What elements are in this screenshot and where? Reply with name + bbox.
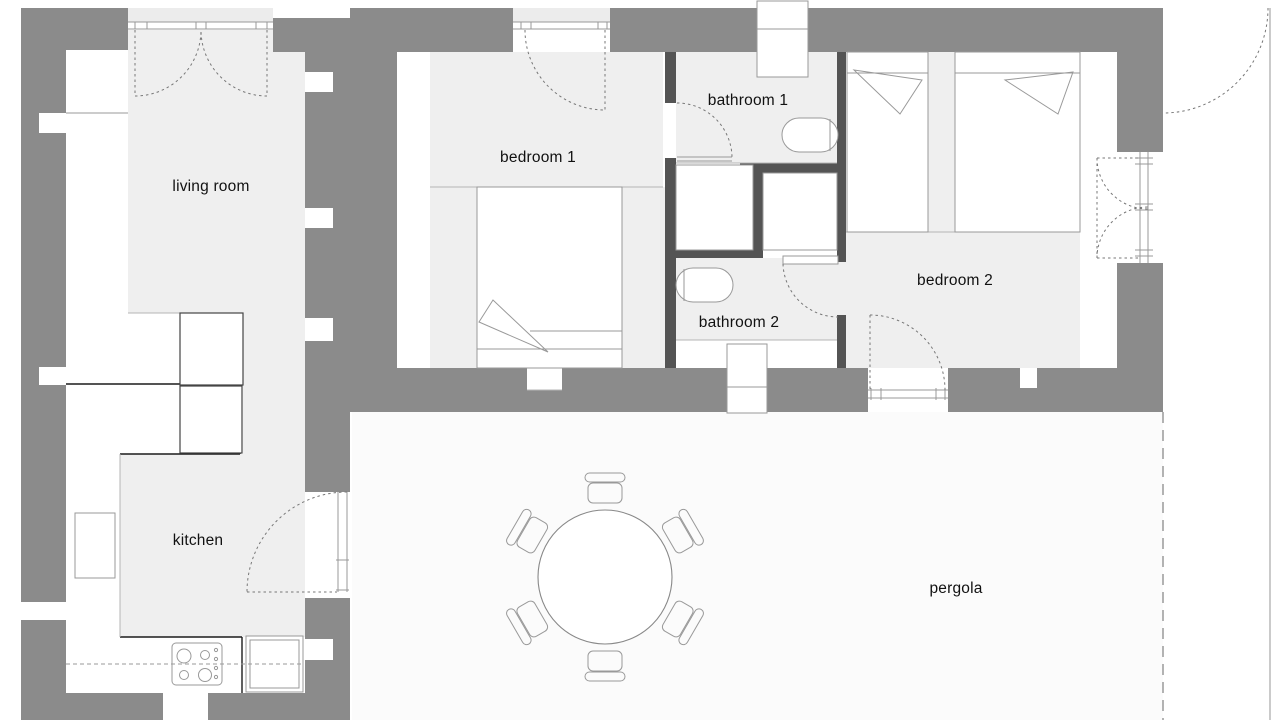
living-cabinet-1 — [180, 313, 243, 385]
bathroom2-toilet — [676, 268, 733, 302]
bedroom1-side-band-right — [620, 187, 665, 368]
window-west-1 — [39, 113, 66, 133]
fridge — [246, 636, 303, 692]
room-label-bedroom2: bedroom 2 — [917, 272, 993, 290]
spine-left-upper — [665, 52, 676, 103]
bedroom1-side-band-left — [430, 187, 477, 368]
spine-right-lower — [837, 315, 846, 368]
window-south-bedroom1 — [527, 368, 562, 390]
shower-divider-wall — [753, 163, 763, 258]
window-east-leftwing-4 — [305, 639, 333, 660]
bedroom2-bed-right — [955, 52, 1080, 232]
kitchen-door-opening — [305, 492, 350, 598]
room-label-kitchen: kitchen — [173, 532, 224, 550]
shower-a-bottom-wall — [665, 250, 763, 258]
room-label-living: living room — [172, 178, 249, 196]
bedroom1-door-frame — [513, 22, 610, 29]
kitchen-counter-left — [75, 513, 115, 578]
room-label-bathroom2: bathroom 2 — [699, 314, 779, 332]
living-cabinet-2 — [180, 386, 242, 453]
bathroom1-toilet — [782, 118, 838, 152]
dining-table — [538, 510, 672, 644]
window-west-3 — [13, 602, 66, 620]
wall-east-upper — [1117, 52, 1163, 152]
wall-east-lower — [1117, 263, 1163, 368]
window-south-small — [1020, 368, 1037, 388]
floor-plan: living room kitchen bedroom 1 bathroom 1… — [0, 0, 1280, 720]
shower-2 — [763, 173, 837, 250]
bathroom2-door-leaf — [783, 256, 838, 264]
window-east-leftwing-2 — [305, 208, 333, 228]
bedroom2-floor — [846, 232, 1080, 368]
floor-plan-svg — [0, 0, 1280, 720]
washbasin — [727, 344, 767, 413]
bathroom2-door-gap — [837, 262, 846, 315]
wall-north-3 — [350, 8, 513, 52]
spine-right-upper — [837, 52, 846, 262]
room-label-bedroom1: bedroom 1 — [500, 149, 576, 167]
room-label-pergola: pergola — [929, 580, 982, 598]
bedroom2-nightstand-band — [928, 52, 955, 232]
window-east-leftwing-1 — [305, 72, 333, 92]
wall-west-bedroomwing — [350, 52, 397, 368]
window-east-leftwing-3 — [305, 318, 333, 341]
entry-door-frame — [128, 22, 273, 29]
wall-east-leftwing-upper — [305, 52, 350, 492]
wall-north-2 — [273, 18, 350, 52]
wall-north-1 — [21, 8, 128, 50]
bedroom1-bed — [477, 187, 622, 368]
wall-north-5 — [808, 8, 1163, 52]
french-window-frame — [1135, 152, 1153, 263]
window-south-kitchen — [163, 693, 208, 720]
bedroom2-bed-left — [847, 52, 928, 232]
gate-swing — [1163, 8, 1268, 113]
pergola-floor — [352, 412, 1163, 720]
spine-left-lower — [665, 158, 676, 368]
shower-1 — [676, 165, 753, 250]
chimney — [757, 1, 808, 77]
window-west-2 — [39, 367, 66, 385]
entry-porch — [128, 8, 273, 22]
room-label-bathroom1: bathroom 1 — [708, 92, 788, 110]
wall-north-4 — [610, 8, 757, 52]
bedroom1-porch — [513, 8, 610, 22]
shower-b-top-wall — [740, 163, 846, 173]
